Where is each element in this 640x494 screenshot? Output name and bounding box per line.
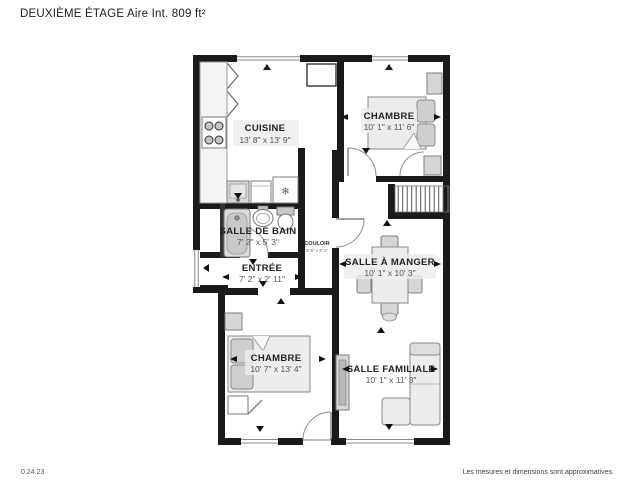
door-balcony: [303, 412, 331, 440]
door-closet-bedroom2: [248, 400, 262, 414]
floorplan-page: DEUXIÈME ÉTAGE Aire Int. 809 ft²: [0, 0, 640, 494]
opening-marker-icon: [277, 298, 285, 304]
window-family: [346, 438, 414, 445]
footer-date: 0.24.23: [21, 469, 44, 476]
nightstand-icon: [225, 313, 242, 330]
opening-marker-icon: [377, 327, 385, 333]
kitchen-closet: [307, 64, 336, 86]
fridge-snowflake-icon: ❄: [281, 187, 289, 198]
room-dims-salle-familiale: 10' 1" x 11' 3": [366, 375, 417, 385]
fridge-icon: ❄: [273, 177, 298, 203]
room-dims-entree: 7' 2" x 2' 11": [239, 274, 285, 284]
opening-marker-icon: [385, 64, 393, 70]
door-dining: [336, 219, 364, 247]
door-closet-kitchen: [227, 63, 238, 117]
dresser-icon: [427, 73, 442, 94]
room-dims-chambre2: 10' 7" x 13' 4": [250, 364, 301, 374]
room-label-entree: ENTRÉE: [242, 263, 282, 274]
bedroom2-closet: [228, 396, 248, 414]
door-closet-stairs: [400, 152, 424, 176]
opening-marker-icon: [362, 148, 370, 154]
window-bedroom2: [241, 438, 278, 445]
opening-marker-icon: [203, 264, 209, 272]
room-dims-salle-de-bain: 7' 2" x 5' 3": [237, 237, 279, 247]
opening-marker-icon: [263, 64, 271, 70]
closet-dresser-icon: [424, 156, 441, 175]
pillow: [417, 124, 435, 146]
bathroom-sink-icon: [253, 206, 273, 227]
window-bedroom1: [372, 55, 408, 62]
opening-marker-icon: [385, 424, 393, 430]
room-dims-couloir: 3' 6" x 9' 1": [306, 248, 329, 253]
page-title: DEUXIÈME ÉTAGE Aire Int. 809 ft²: [20, 8, 206, 20]
opening-marker-icon: [383, 220, 391, 226]
footer-disclaimer: Les mesures et dimensions sont approxima…: [463, 469, 614, 476]
room-dims-chambre1: 10' 1" x 11' 6": [364, 122, 415, 132]
stove-icon: [202, 117, 226, 148]
room-label-chambre1: CHAMBRE: [364, 111, 415, 122]
room-label-salle-familiale: SALLE FAMILIALE: [347, 364, 435, 375]
room-label-salle-a-manger: SALLE À MANGER: [345, 257, 435, 268]
room-dims-salle-a-manger: 10' 1" x 10' 3": [364, 268, 415, 278]
room-label-salle-de-bain: SALLE DE BAIN: [220, 226, 297, 237]
room-label-couloir: COULOIR: [304, 241, 329, 247]
room-dims-cuisine: 13' 8" x 13' 9": [239, 135, 290, 145]
room-label-chambre2: CHAMBRE: [251, 353, 302, 364]
window-kitchen: [237, 55, 300, 62]
kitchen-sink-icon: [227, 181, 249, 203]
room-label-cuisine: CUISINE: [245, 123, 286, 134]
window-left: [193, 250, 200, 287]
dishwasher-icon: [251, 181, 271, 203]
opening-marker-icon: [256, 426, 264, 432]
floor-plan: ❄: [0, 0, 640, 494]
stairs-icon: [395, 186, 449, 212]
pillow: [417, 100, 435, 122]
door-bedroom1: [348, 148, 376, 176]
